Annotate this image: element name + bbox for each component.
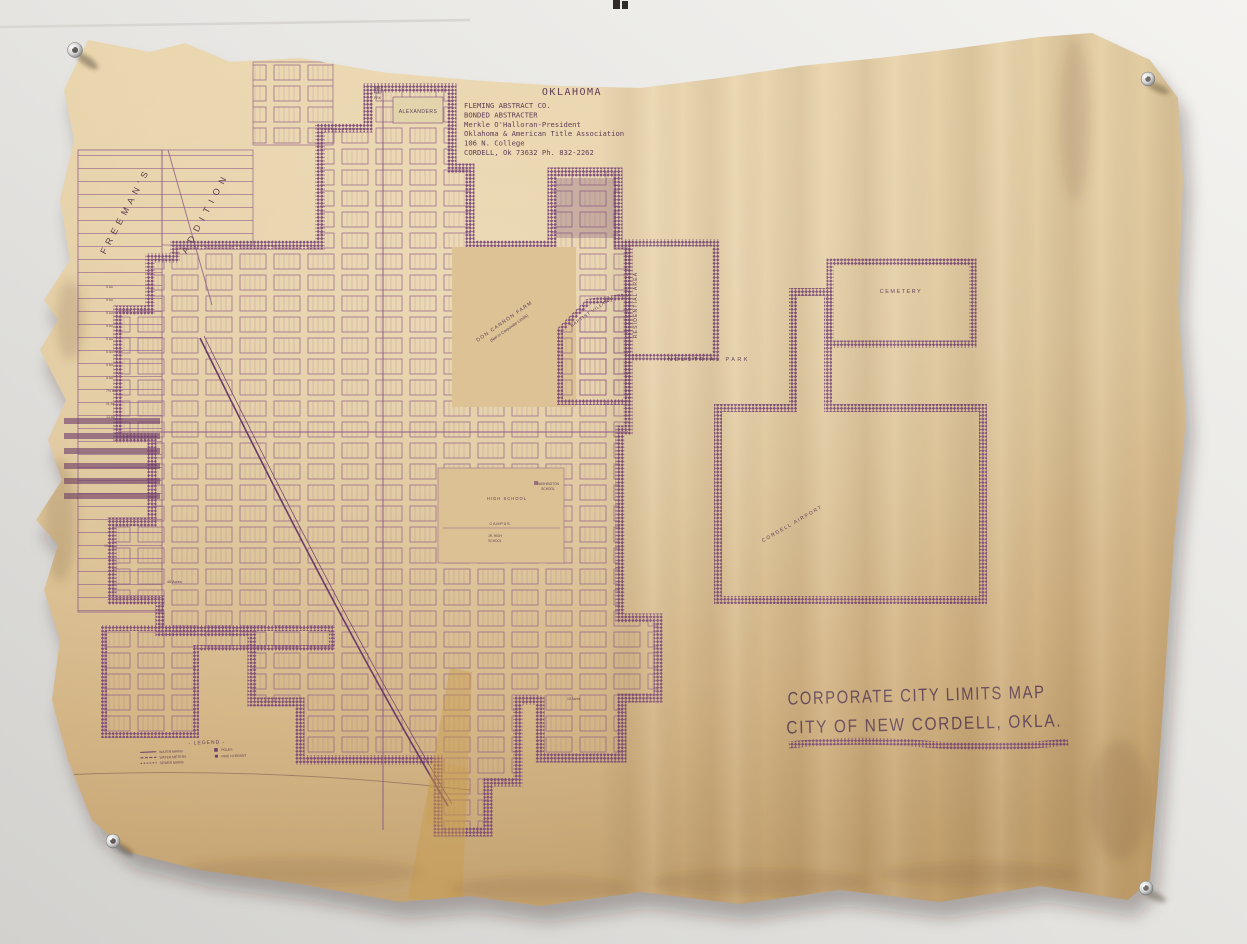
label-washington-school: SCHOOL — [541, 487, 555, 491]
acreage-label: 10 Ac — [104, 544, 113, 548]
legend-entry: POLES — [221, 748, 233, 752]
label-mhp-line: PRK — [374, 96, 382, 100]
label-mhp-line: HME — [374, 91, 382, 95]
legend-glyph-square — [214, 748, 218, 752]
photo-of-wall-map: CITY OF NEW CORDELL OKLAHOMA FLEMING ABS… — [0, 0, 1247, 944]
acreage-label: 5 Ac — [106, 363, 113, 367]
label-jr-high-school: SCHOOL — [488, 539, 502, 543]
label-jr-high: JR. HIGH — [488, 534, 502, 538]
acreage-label: 5 Ac — [106, 376, 113, 380]
label-mhp-line: MBLE — [374, 86, 384, 90]
label-ten-acres: 10 Acres — [567, 697, 580, 701]
label-forty-acres: 40 Acres — [167, 580, 182, 584]
legend-glyph-line — [140, 752, 156, 753]
label-alexanders: ALEXANDERS — [399, 109, 438, 115]
tape-strip-2 — [426, 760, 470, 830]
publisher-line: CORDELL, Ok 73632 Ph. 832-2262 — [464, 148, 594, 157]
acreage-label: 5 Ac — [106, 324, 113, 328]
acreage-label: 5 Ac — [106, 337, 113, 341]
label-campus: CAMPUS — [489, 522, 510, 526]
acreage-label: 5 Ac — [106, 311, 113, 315]
acreage-label: 13 Ac — [106, 415, 115, 419]
publisher-line: FLEMING ABSTRACT CO. — [464, 101, 551, 110]
acreage-label: 5 Ac — [106, 350, 113, 354]
acreage-label: 11 Ac — [106, 402, 115, 406]
acreage-label: 5 Ac — [106, 298, 113, 302]
acreage-label: 5 Ac — [106, 285, 113, 289]
label-washington: WASHINGTON — [537, 482, 559, 486]
label-high-school: HIGH SCHOOL — [487, 496, 527, 501]
map-header-state: OKLAHOMA — [542, 87, 602, 98]
legend-title: - LEGEND - — [189, 739, 226, 746]
legend-entry: WATER MAINS — [159, 749, 183, 754]
publisher-line: 106 N. College — [464, 139, 525, 148]
publisher-line: Merkle O'Halloran-President — [464, 120, 581, 129]
publisher-line: BONDED ABSTRACTER — [464, 110, 538, 119]
acreage-label: 7½ Ac — [106, 389, 116, 393]
